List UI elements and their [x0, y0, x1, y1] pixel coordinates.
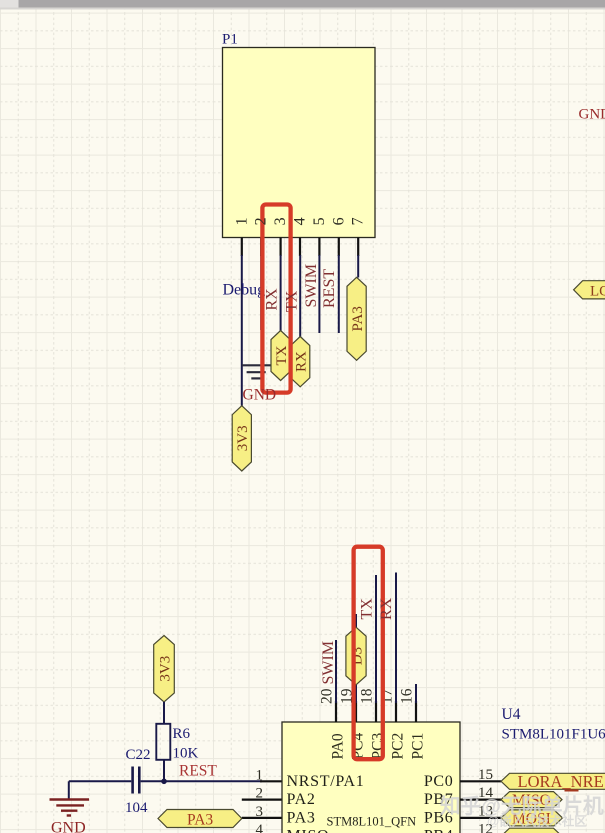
- svg-text:LORA_NRE: LORA_NRE: [518, 772, 604, 791]
- svg-text:3V3: 3V3: [157, 656, 173, 682]
- svg-text:PB4: PB4: [424, 828, 454, 833]
- svg-text:STM8L101_QFN: STM8L101_QFN: [327, 815, 417, 829]
- svg-text:SWIM: SWIM: [303, 264, 320, 308]
- svg-text:TX: TX: [284, 290, 301, 312]
- svg-text:Debug: Debug: [223, 282, 266, 299]
- svg-text:RX: RX: [264, 288, 281, 311]
- svg-text:REST: REST: [179, 763, 217, 780]
- svg-text:PA2: PA2: [287, 791, 316, 808]
- svg-text:P1: P1: [222, 32, 238, 48]
- svg-text:3: 3: [272, 217, 289, 225]
- svg-text:PC1: PC1: [410, 733, 427, 760]
- svg-text:U4: U4: [502, 706, 521, 723]
- svg-text:PC0: PC0: [424, 773, 454, 790]
- svg-text:SWIM: SWIM: [320, 641, 337, 685]
- svg-text:@嵌入式技术社区: @嵌入式技术社区: [487, 814, 587, 829]
- svg-text:RX: RX: [294, 351, 310, 372]
- svg-text:PA3: PA3: [187, 812, 213, 829]
- svg-text:104: 104: [125, 800, 148, 816]
- svg-text:16: 16: [399, 688, 416, 704]
- svg-text:10K: 10K: [173, 746, 199, 762]
- svg-text:MISO: MISO: [287, 828, 330, 833]
- svg-text:GND: GND: [51, 820, 86, 833]
- svg-text:TX: TX: [359, 598, 376, 620]
- svg-text:1: 1: [256, 767, 264, 783]
- svg-text:15: 15: [478, 767, 493, 783]
- svg-text:PA3: PA3: [350, 306, 366, 331]
- svg-text:4: 4: [292, 217, 309, 225]
- svg-text:6: 6: [330, 217, 347, 225]
- svg-text:GND: GND: [579, 107, 605, 123]
- svg-text:PA0: PA0: [330, 733, 347, 759]
- svg-text:7: 7: [350, 217, 367, 225]
- svg-text:TX: TX: [274, 345, 290, 365]
- svg-text:STM8L101F1U6: STM8L101F1U6: [502, 727, 605, 743]
- svg-text:LO: LO: [590, 283, 605, 299]
- svg-text:1: 1: [233, 217, 250, 225]
- svg-text:PA3: PA3: [287, 809, 316, 826]
- svg-text:PC2: PC2: [390, 733, 407, 760]
- svg-text:NRST/PA1: NRST/PA1: [287, 773, 365, 790]
- svg-text:3V3: 3V3: [235, 425, 251, 451]
- svg-text:RX: RX: [378, 597, 395, 620]
- svg-text:20: 20: [319, 688, 336, 704]
- svg-text:C22: C22: [126, 747, 151, 763]
- svg-text:18: 18: [359, 688, 376, 704]
- svg-text:GND: GND: [243, 387, 277, 404]
- svg-text:R6: R6: [173, 726, 191, 742]
- svg-text:4: 4: [256, 822, 264, 833]
- svg-text:REST: REST: [321, 269, 338, 308]
- svg-text:5: 5: [311, 217, 328, 225]
- svg-text:2: 2: [253, 217, 270, 225]
